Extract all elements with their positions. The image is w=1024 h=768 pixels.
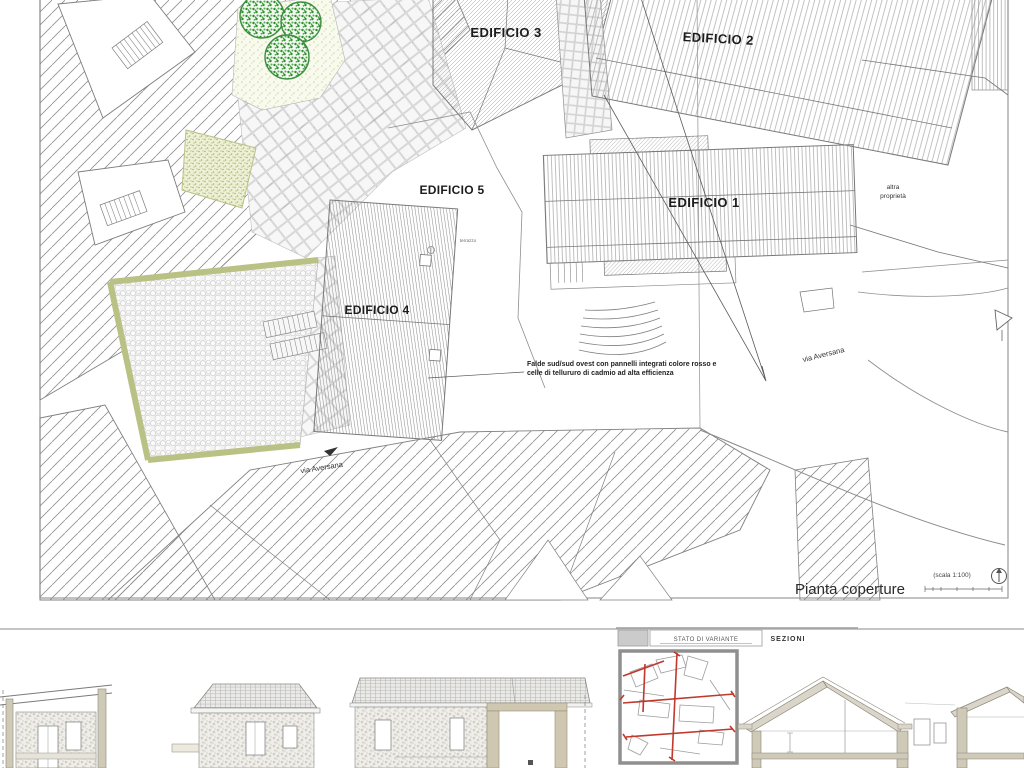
elevation-a <box>0 685 112 768</box>
label-edificio-5: EDIFICIO 5 <box>419 183 484 197</box>
label-altra-proprieta-1: altra <box>887 184 900 191</box>
label-edificio-1: EDIFICIO 1 <box>668 195 739 210</box>
beam <box>487 703 567 711</box>
roof-slope <box>1007 687 1024 703</box>
section-b <box>951 687 1024 768</box>
label-edificio-3: EDIFICIO 3 <box>470 25 541 40</box>
strip-titleblock: STATO DI VARIANTE SEZIONI <box>616 628 858 646</box>
dimension-line <box>787 733 793 752</box>
tree-icon <box>265 35 309 79</box>
neighbor-roof-bottom-right <box>795 458 880 600</box>
label-terrazzo: terrazzo <box>460 238 477 243</box>
annotation-line-2: celle di tellururo di cadmio ad alta eff… <box>527 370 674 377</box>
window <box>66 722 81 750</box>
drawing-sheet: EDIFICIO 3 EDIFICIO 2 EDIFICIO 1 EDIFICI… <box>0 0 1024 768</box>
elevations-strip: STATO DI VARIANTE SEZIONI <box>0 628 1024 768</box>
floor-slab <box>957 753 1024 759</box>
tree-icon <box>240 0 284 38</box>
window <box>246 722 265 755</box>
roof-slope <box>823 681 903 732</box>
roof-vent <box>420 254 432 266</box>
label-altra-proprieta-2: proprietà <box>880 193 906 200</box>
post <box>487 711 499 768</box>
annotation-line-1: Falde sud/sud ovest con pannelli integra… <box>527 361 717 368</box>
roof-edificio-4 <box>314 200 458 440</box>
floor-slab <box>752 753 908 759</box>
elevation-c <box>350 678 592 768</box>
section-interior-detail <box>905 703 955 745</box>
wall <box>752 731 761 768</box>
label-edificio-4: EDIFICIO 4 <box>344 303 409 317</box>
roof-slope <box>745 681 827 732</box>
door-detail <box>528 760 533 765</box>
roof <box>194 684 317 708</box>
roof <box>352 678 590 703</box>
post <box>555 711 567 768</box>
site-plan-drawing: EDIFICIO 3 EDIFICIO 2 EDIFICIO 1 EDIFICI… <box>0 0 1024 768</box>
titleblock-gray-cell <box>618 630 648 646</box>
elevation-b <box>172 684 320 768</box>
section-a <box>738 677 912 768</box>
window <box>375 720 391 750</box>
scale-note: (scala 1:100) <box>933 572 971 579</box>
wall <box>897 731 908 768</box>
key-plan <box>620 651 737 763</box>
plan-title: Pianta coperture <box>795 581 905 598</box>
courtyard <box>110 260 327 460</box>
window <box>450 718 464 750</box>
window <box>283 726 297 748</box>
roof-vent <box>429 349 441 361</box>
label-stato-di-variante: STATO DI VARIANTE <box>674 637 739 643</box>
label-sezioni: SEZIONI <box>770 636 805 643</box>
